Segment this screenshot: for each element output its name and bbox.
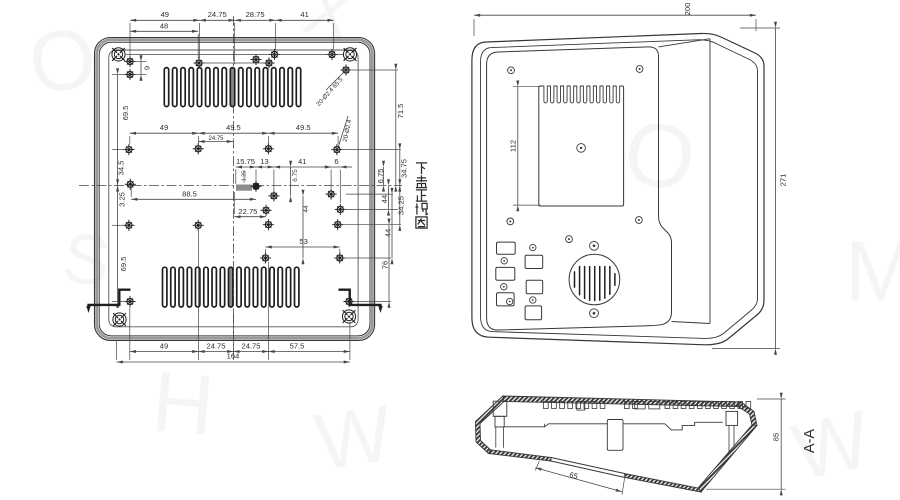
svg-text:34.75: 34.75 xyxy=(400,159,409,178)
svg-text:112: 112 xyxy=(509,140,518,152)
svg-text:271: 271 xyxy=(779,174,788,187)
svg-text:28.75: 28.75 xyxy=(246,10,265,19)
svg-text:13: 13 xyxy=(260,157,268,166)
svg-text:24.75: 24.75 xyxy=(208,136,224,142)
svg-text:44: 44 xyxy=(380,195,389,203)
svg-text:6.75: 6.75 xyxy=(376,169,385,184)
svg-text:69.5: 69.5 xyxy=(119,257,128,272)
svg-text:22.75: 22.75 xyxy=(238,207,257,216)
svg-text:24.75: 24.75 xyxy=(206,342,225,351)
svg-text:49.5: 49.5 xyxy=(226,123,241,132)
svg-text:24.75: 24.75 xyxy=(241,342,260,351)
svg-text:41: 41 xyxy=(300,10,308,19)
svg-text:34.5: 34.5 xyxy=(117,161,126,176)
svg-text:6.75: 6.75 xyxy=(292,169,299,182)
svg-text:164: 164 xyxy=(227,352,240,361)
svg-text:34.25: 34.25 xyxy=(397,196,406,215)
svg-text:49: 49 xyxy=(160,123,168,132)
svg-text:44: 44 xyxy=(384,229,393,237)
svg-text:9: 9 xyxy=(143,66,152,70)
svg-text:88.5: 88.5 xyxy=(182,190,197,199)
svg-text:44: 44 xyxy=(303,205,310,213)
svg-text:53: 53 xyxy=(299,237,307,246)
svg-text:49: 49 xyxy=(161,10,169,19)
svg-text:1.25: 1.25 xyxy=(241,171,247,182)
svg-text:24.75: 24.75 xyxy=(208,10,227,19)
svg-text:69.5: 69.5 xyxy=(121,106,130,121)
svg-text:57.5: 57.5 xyxy=(290,342,305,351)
svg-text:41: 41 xyxy=(298,157,306,166)
svg-text:W: W xyxy=(310,388,398,487)
svg-text:6: 6 xyxy=(334,157,338,166)
svg-text:71.5: 71.5 xyxy=(396,104,405,119)
svg-text:200: 200 xyxy=(683,3,692,16)
svg-text:49.5: 49.5 xyxy=(296,123,311,132)
svg-text:M: M xyxy=(845,224,900,319)
svg-text:15.75: 15.75 xyxy=(236,157,255,166)
svg-text:76: 76 xyxy=(381,261,390,269)
svg-text:H: H xyxy=(148,354,217,454)
svg-text:85: 85 xyxy=(772,433,781,441)
svg-text:A-A: A-A xyxy=(802,429,818,454)
svg-text:49: 49 xyxy=(160,342,168,351)
svg-text:48: 48 xyxy=(160,22,168,31)
svg-text:3.25: 3.25 xyxy=(118,192,127,207)
